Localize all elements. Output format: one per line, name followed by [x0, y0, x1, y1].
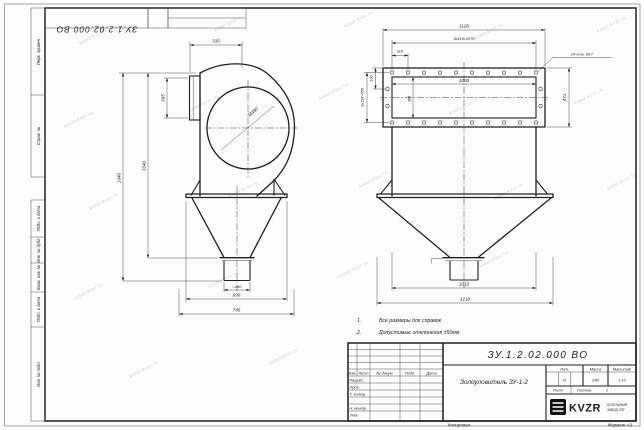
- dim-690: 690: [233, 293, 241, 298]
- titleblock-doc-number: ЗУ.1.2.02.000 ВО: [488, 350, 589, 361]
- watermark-text: kotel-kvzr.ru: [128, 360, 159, 380]
- brand-name: KVZR: [569, 403, 601, 415]
- note-2-number: 2.: [356, 330, 361, 336]
- dim-circle-diameter: Ø380: [246, 106, 259, 118]
- watermark-text: kotel-kvzr.ru: [228, 180, 259, 200]
- col-header-list: Лист: [357, 371, 369, 376]
- mass-header: Масса: [590, 367, 602, 372]
- scale-value: 1:10: [618, 378, 626, 383]
- watermark-text: kotel-kvzr.ru: [318, 82, 349, 102]
- margin-label-sprav-no: Справ. №: [36, 126, 41, 145]
- dim-745: 745: [233, 308, 241, 313]
- brand-subline-1: КОТЕЛЬНЫЙ: [607, 403, 628, 407]
- dim-365: 365: [161, 94, 166, 102]
- scale-header: Масштаб: [613, 367, 632, 372]
- col-header-data: Дата: [425, 371, 437, 376]
- dim-1040: 1040: [142, 160, 147, 171]
- margin-label-inv-dubl: Инв. № дубл.: [36, 237, 41, 262]
- drawing-sheet: kotel-kvzr.ru kotel-kvzr.ru kotel-kvzr.r…: [0, 0, 644, 430]
- dim-outlet-260: □260: [233, 285, 243, 289]
- watermark-text: kotel-kvzr.ru: [358, 170, 389, 190]
- watermark-text: kotel-kvzr.ru: [213, 14, 244, 34]
- margin-label-podp-data-bottom: Подп. и дата: [36, 296, 41, 322]
- dim-side-pitch: 3x118=355: [361, 87, 365, 107]
- watermark-text: kotel-kvzr.ru: [573, 87, 604, 107]
- lit-header: Лит.: [559, 367, 569, 372]
- dim-1210: 1210: [460, 297, 471, 302]
- row-label-nkontr: Н. контр.: [350, 406, 368, 411]
- watermark-text: kotel-kvzr.ru: [493, 182, 524, 202]
- title-block: ЗУ.1.2.02.000 ВО Золоуловитель ЗУ-1-2 Из…: [348, 343, 636, 421]
- note-1-number: 1.: [357, 318, 361, 324]
- front-view: Ø380 335 365 1640 1040 □260 690 745: [117, 39, 299, 317]
- volute-outline: [200, 64, 295, 196]
- list-header: Лист: [552, 388, 564, 393]
- dim-119: 119: [397, 50, 404, 54]
- watermark-text: kotel-kvzr.ru: [88, 192, 119, 212]
- watermark-text: kotel-kvzr.ru: [596, 15, 627, 35]
- col-header-izm: Изм.: [348, 371, 356, 376]
- margin-labels: Перв. примен. Справ. № Подп. и дата Инв.…: [36, 38, 41, 387]
- margin-label-inv-podl: Инв. № подл.: [36, 361, 41, 386]
- dim-1126: 1126: [459, 24, 469, 29]
- row-label-prov: Пров.: [350, 385, 360, 390]
- dim-1000: 1000: [459, 78, 470, 83]
- watermark-text: kotel-kvzr.ru: [268, 347, 299, 367]
- watermark-text: kotel-kvzr.ru: [338, 260, 369, 280]
- margin-label-perv-primen: Перв. примен.: [36, 38, 41, 65]
- note-2-text: Допустимые отклонения ±50мм: [378, 330, 460, 336]
- watermark-text: kotel-kvzr.ru: [63, 110, 94, 130]
- dim-385: 385: [408, 95, 412, 102]
- dim-335: 335: [212, 39, 220, 44]
- dim-hole-pitch-row: 9x119=1070: [454, 37, 476, 41]
- mass-value: 240: [591, 378, 599, 383]
- row-label-tkontr: Т. контр.: [350, 392, 367, 397]
- engineering-drawing: kotel-kvzr.ru kotel-kvzr.ru kotel-kvzr.r…: [0, 0, 644, 430]
- listov-value: 1: [606, 388, 608, 393]
- dim-1010: 1010: [459, 282, 470, 287]
- margin-label-podp-data-top: Подп. и дата: [36, 205, 41, 231]
- lit-value: И: [563, 378, 566, 383]
- col-header-podp: Подп.: [405, 371, 415, 376]
- brand-subline-2: ЗАВОД ЛЗТ: [607, 408, 626, 412]
- margin-label-vzam-inv: Взам. инв. №: [36, 264, 41, 290]
- note-1-text: Все размеры для справок: [379, 318, 442, 324]
- listov-header: Листов: [576, 388, 591, 393]
- sheet-footer: Копировал Формат A3: [448, 423, 633, 428]
- col-header-ndoc: № докум.: [376, 371, 393, 376]
- copied-label: Копировал: [448, 423, 471, 428]
- watermark-text: kotel-kvzr.ru: [343, 10, 374, 30]
- titleblock-part-title: Золоуловитель ЗУ-1-2: [460, 379, 528, 386]
- dim-1640: 1640: [117, 172, 122, 183]
- sheet-frame: [5, 4, 641, 426]
- watermark-text: kotel-kvzr.ru: [73, 282, 104, 302]
- dim-471: 471: [562, 93, 567, 101]
- format-label: Формат A3: [608, 423, 633, 428]
- dim-100: 100: [370, 74, 374, 81]
- watermark-text: kotel-kvzr.ru: [606, 172, 637, 192]
- rotated-doc-number: ЗУ.1.2.02.000 ВО: [56, 25, 138, 35]
- row-label-razrab: Разраб.: [350, 378, 364, 383]
- holes-count-note: 24 отв. Ø17: [570, 53, 594, 57]
- watermark-layer: kotel-kvzr.ru kotel-kvzr.ru kotel-kvzr.r…: [63, 10, 637, 380]
- watermark-text: kotel-kvzr.ru: [473, 22, 504, 42]
- row-label-utv: Утв.: [350, 413, 359, 418]
- notes-block: 1. Все размеры для справок 2. Допустимые…: [356, 318, 460, 336]
